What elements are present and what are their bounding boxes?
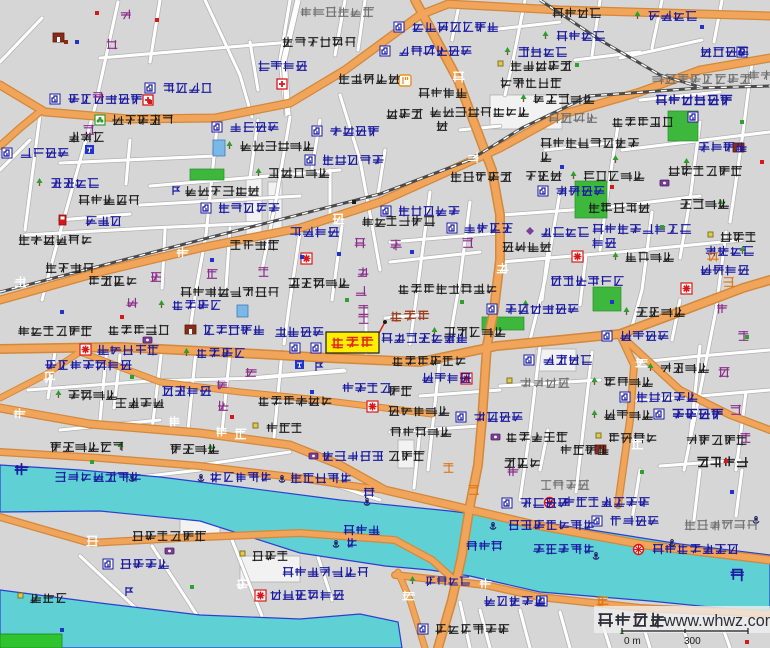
svg-text:www.whwz.com: www.whwz.com xyxy=(663,612,770,630)
svg-text:300: 300 xyxy=(684,636,701,647)
svg-text:0 m: 0 m xyxy=(624,636,641,647)
